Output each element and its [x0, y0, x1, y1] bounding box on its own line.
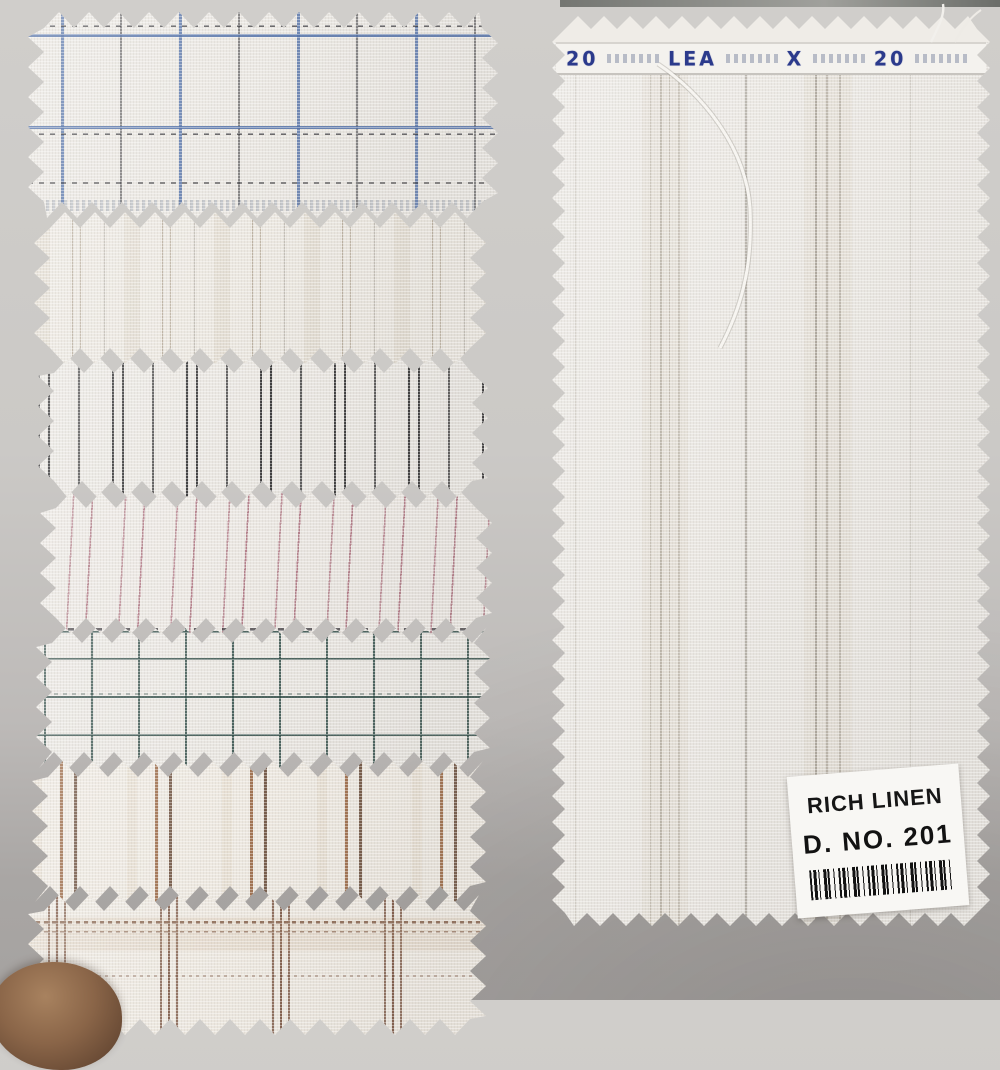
sticker-label: RICH LINEN D. NO. 201	[787, 763, 970, 918]
fabric-swatch-5-teal-grid	[36, 627, 490, 768]
fabric-sample-card-photo: 20 LEA X 20 RICH LINEN D. NO. 201	[0, 0, 1000, 1000]
selvage-label: 20 LEA X 20	[556, 42, 986, 75]
selvage-text-x: X	[787, 47, 805, 70]
barcode	[809, 859, 953, 900]
selvage-woven-dots	[607, 54, 659, 63]
fabric-swatch-1-windowpane-check	[28, 12, 498, 218]
weave-texture	[38, 357, 488, 497]
selvage-woven-dots	[915, 54, 967, 63]
sticker-title: RICH LINEN	[806, 782, 944, 819]
weave-texture	[28, 12, 498, 218]
photo-top-edge	[560, 0, 1000, 7]
weave-texture	[40, 492, 492, 634]
fabric-swatch-6-rust-stripes	[32, 761, 486, 902]
weave-texture	[34, 212, 486, 364]
weave-texture	[36, 627, 490, 768]
sticker-design-number: D. NO. 201	[802, 818, 954, 861]
fabric-swatch-3-black-stripes	[38, 357, 488, 497]
selvage-text-lea: LEA	[668, 47, 717, 70]
selvage-text-count-left: 20	[566, 47, 598, 70]
fabric-swatch-2-tan-pinstripes	[34, 212, 486, 364]
fabric-swatch-4-maroon-pinstripes	[40, 492, 492, 634]
selvage-woven-dots	[813, 54, 865, 63]
selvage-text-count-right: 20	[874, 47, 906, 70]
selvage-woven-dots	[726, 54, 778, 63]
weave-texture	[32, 761, 486, 902]
frayed-top-edge	[552, 16, 990, 42]
